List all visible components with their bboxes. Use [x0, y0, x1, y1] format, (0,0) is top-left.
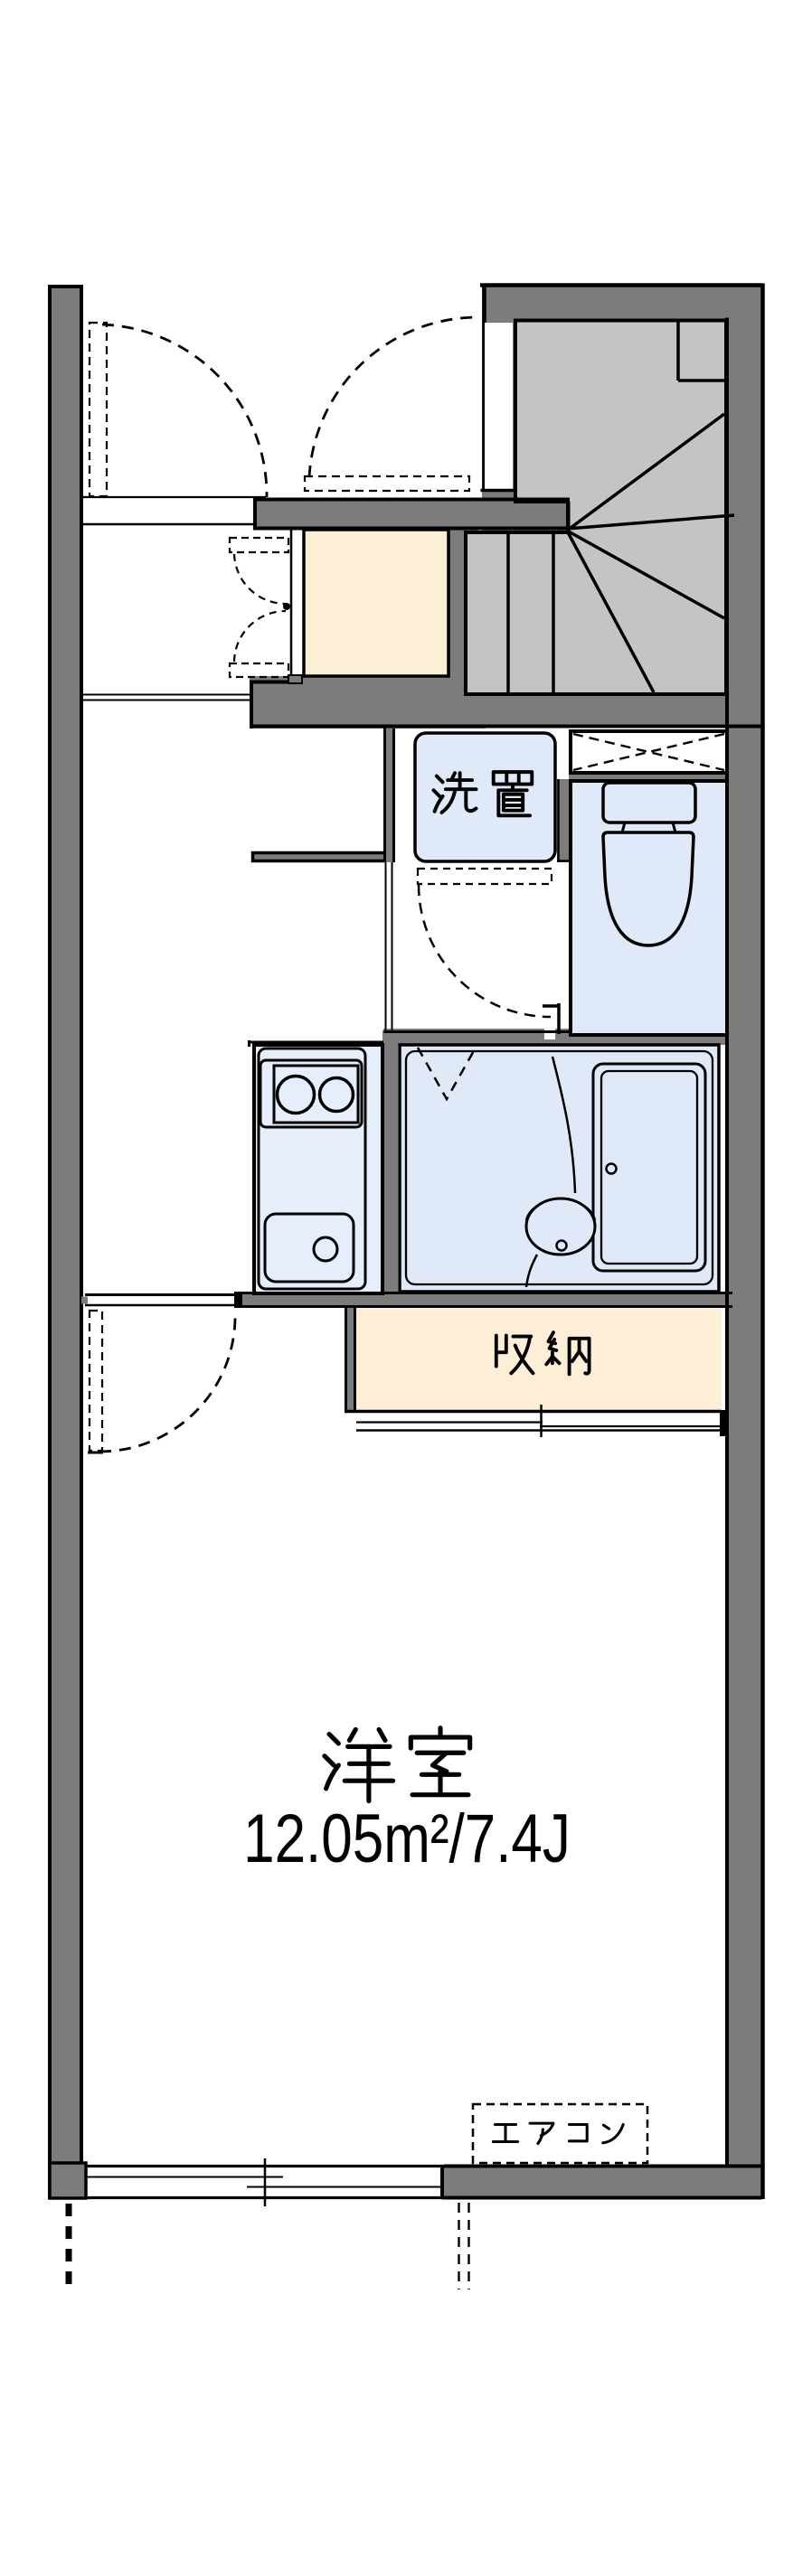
svg-text:12.05m²/7.4J: 12.05m²/7.4J: [243, 1800, 571, 1876]
